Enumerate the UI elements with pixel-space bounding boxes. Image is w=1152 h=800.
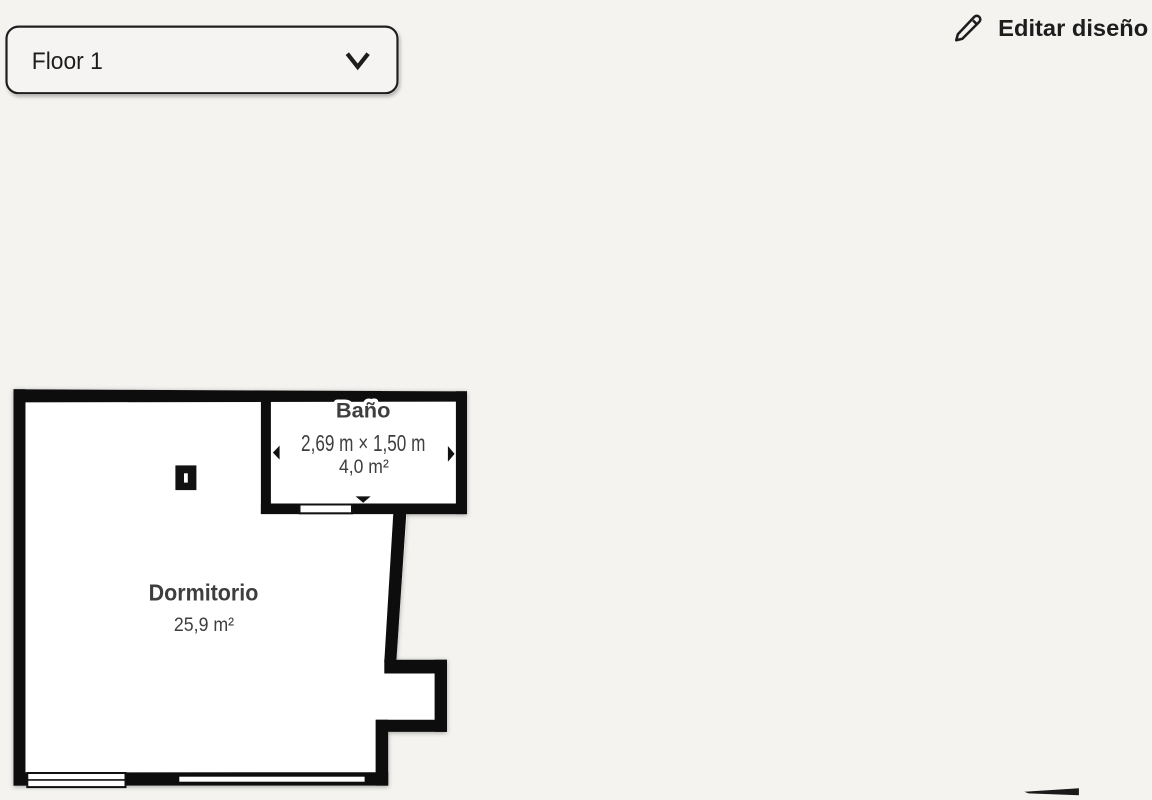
svg-text:Editar diseño: Editar diseño <box>998 15 1148 41</box>
svg-text:Floor 1: Floor 1 <box>32 48 103 75</box>
svg-text:Dormitorio: Dormitorio <box>149 580 259 606</box>
svg-text:25,9 m²: 25,9 m² <box>174 614 235 636</box>
svg-text:4,0 m²: 4,0 m² <box>339 456 389 478</box>
svg-text:Baño: Baño <box>336 399 391 422</box>
svg-text:2,69 m × 1,50 m: 2,69 m × 1,50 m <box>301 430 425 456</box>
